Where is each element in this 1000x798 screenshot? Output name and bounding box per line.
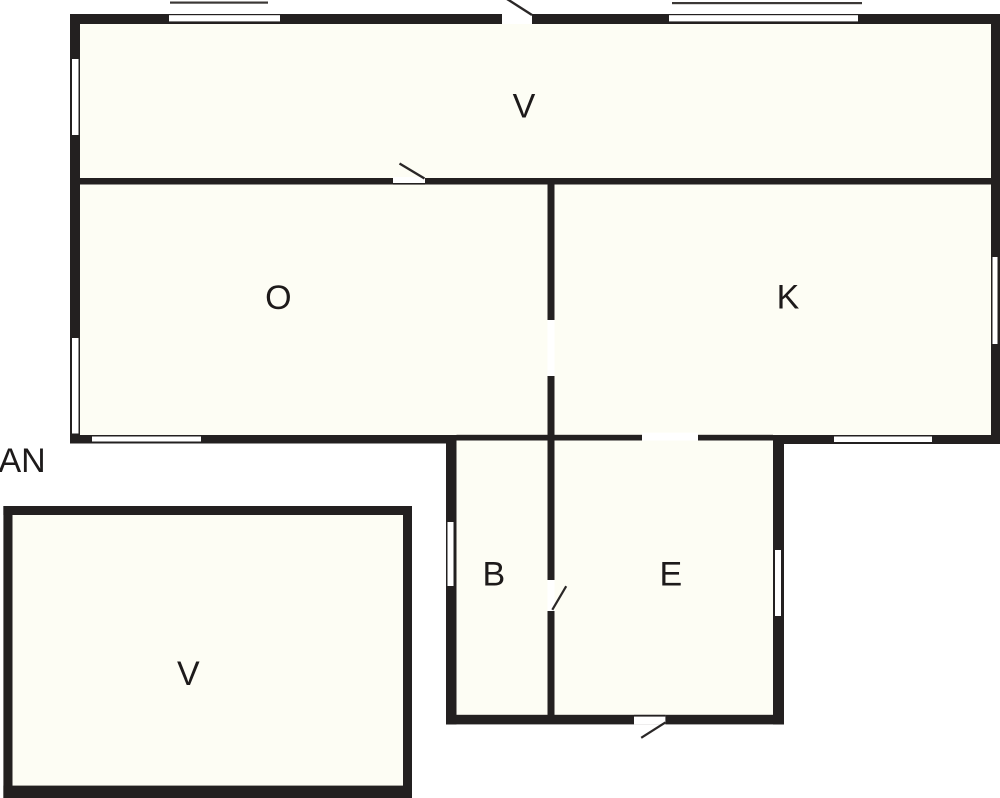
svg-text:E: E (659, 556, 682, 594)
svg-text:K: K (777, 279, 800, 317)
svg-text:V: V (177, 655, 200, 693)
svg-text:AN: AN (0, 442, 46, 480)
svg-text:B: B (482, 556, 505, 594)
svg-text:O: O (265, 279, 291, 317)
svg-text:V: V (513, 88, 536, 126)
